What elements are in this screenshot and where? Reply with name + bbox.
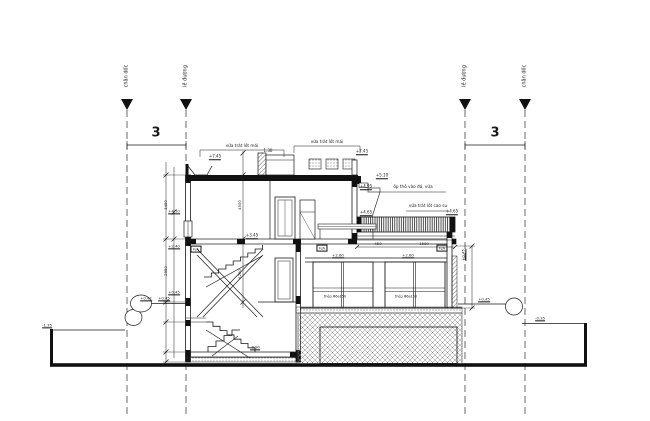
axis-label-right-inner: lề đường <box>463 65 468 87</box>
level-terrace-right: +4.65 <box>446 209 458 215</box>
level-veranda: +0.45 <box>461 249 466 261</box>
annotation-layer: chân dốclề đườnglề đườngchân dốc33vữa tr… <box>0 0 650 421</box>
level-ground-right-b: -0.35 <box>535 316 545 321</box>
level-window-2: +2.60 <box>402 253 414 258</box>
chain-dim-2: 2950 <box>164 266 168 276</box>
level-roof-2: +7.45 <box>356 149 368 155</box>
floor-tag-right: F/A <box>436 245 447 252</box>
chain-dim-3: 4500 <box>238 200 242 210</box>
rebar-note-2: thép Φ6a150 <box>395 295 417 298</box>
level-downspout: +4.95 <box>360 184 372 190</box>
axis-dim-right: 3 <box>490 127 499 140</box>
level-wall-1: +4.50 <box>168 209 180 214</box>
chain-dim-1: 3450 <box>164 200 168 210</box>
floor-tag-left: F/A <box>190 246 201 253</box>
axis-label-left-outer: chân dốc <box>125 65 130 88</box>
dim-roof: 1.30 <box>264 149 273 153</box>
dim-terrace-1: 450 <box>374 242 381 246</box>
section-drawing: chân dốclề đườnglề đườngchân dốc33vữa tr… <box>0 0 650 421</box>
level-ground-left-a: +0.42 <box>140 296 152 301</box>
terrace-note-1: ốp thô vào đá, vữa <box>393 185 432 189</box>
level-roof-1: +7.45 <box>209 154 221 160</box>
axis-label-right-outer: chân dốc <box>523 65 528 88</box>
roof-note-1: vữa trát lót mái <box>226 144 258 148</box>
level-wall-2: +2.40 <box>168 244 180 249</box>
level-window-1: +2.60 <box>332 253 344 258</box>
axis-label-left-inner: lề đường <box>184 65 189 87</box>
roof-note-2: vữa trát lót mái <box>311 140 343 144</box>
level-ground-far-left: -1.35 <box>42 323 52 328</box>
rebar-note-1: thép Φ6a150 <box>324 295 346 298</box>
level-terrace-left: +4.65 <box>360 210 372 216</box>
level-basement: -0.90 <box>250 345 260 350</box>
dim-terrace-2: 1500 <box>419 242 429 246</box>
level-floor2: +3.45 <box>246 233 258 239</box>
axis-dim-left: 3 <box>151 127 160 140</box>
level-scupper: +5.10 <box>376 173 388 179</box>
level-ground-right-a: +0.45 <box>478 297 490 302</box>
level-ground-left-b: +0.45 <box>158 296 170 301</box>
terrace-note-2: vữa trát lót cao su <box>409 204 447 208</box>
chain-dim-4: 6200 <box>238 269 242 279</box>
floor-tag-mid: F/A <box>316 245 327 252</box>
